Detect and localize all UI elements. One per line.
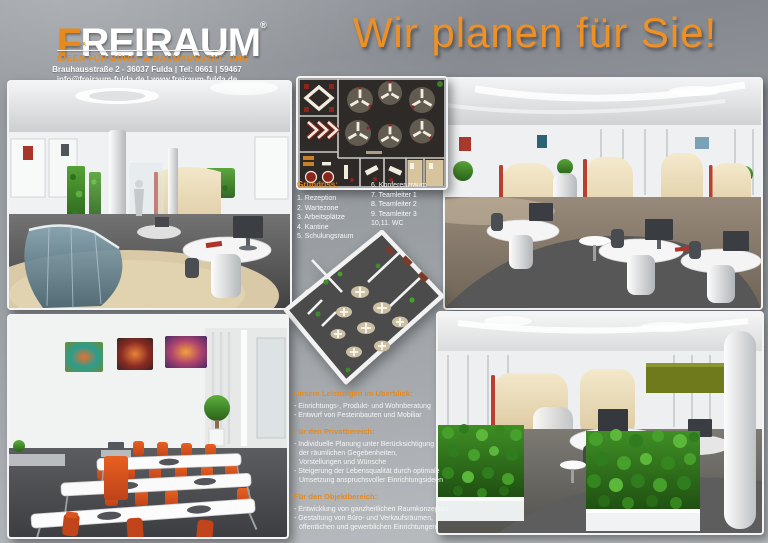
brand-tagline: IDEEN FÜR BÜRO- & RAUMAUSSTATTUNG — [57, 53, 233, 63]
small-plant — [13, 440, 25, 452]
lectern — [101, 442, 131, 500]
training-room-graphic — [9, 316, 287, 537]
legend-item: 2. Wartezone — [297, 204, 353, 214]
service-line: Umsetzung anspruchsvoller Einrichtungsid… — [294, 476, 452, 485]
legend-item: 3. Arbeitsplätze — [297, 213, 353, 223]
headline: Wir planen für Sie! — [310, 8, 760, 58]
legend-item: 8. Teamleiter 2 — [371, 200, 427, 210]
legend-item: 10,11. WC — [371, 219, 427, 229]
legend-item: 6. Konferenzraum — [371, 181, 427, 191]
service-line: - Gestaltung von Büro- und Verkaufsräume… — [294, 514, 452, 523]
freiraum-poster: FREIRAUM® FULDA IDEEN FÜR BÜRO- & RAUMAU… — [0, 0, 768, 543]
legend-item: 7. Teamleiter 1 — [371, 191, 427, 201]
logo-divider-line — [57, 50, 233, 51]
floorplan-legend: Grundriss: 1. Rezeption 2. Wartezone 3. … — [297, 180, 447, 195]
service-line: - Steigerung der Lebensqualität durch op… — [294, 467, 452, 476]
service-line: öffentlichen und gewerblichen Einrichtun… — [294, 523, 452, 532]
service-line: - Entwurf von Festeinbauten und Mobiliar — [294, 411, 452, 420]
photo-openplan-render — [443, 77, 763, 310]
service-line: der räumlichen Gegebenheiten, — [294, 449, 452, 458]
iso-structure — [286, 232, 442, 385]
legend-item: 1. Rezeption — [297, 194, 353, 204]
photo-training-room — [7, 314, 289, 539]
logo-subtext: FULDA — [61, 42, 88, 48]
legend-column-2: 6. Konferenzraum 7. Teamleiter 1 8. Team… — [371, 181, 427, 229]
registered-trademark: ® — [260, 20, 267, 30]
service-line: - Einrichtungs-, Produkt- und Wohnberatu… — [294, 402, 452, 411]
plantwall-office-graphic — [438, 313, 762, 533]
services-private-heading: Für den Privatbereich: — [294, 427, 452, 436]
floorplan-3d-isometric — [282, 230, 446, 386]
service-line: - Individuelle Planung unter Berücksicht… — [294, 440, 452, 449]
floorplan-2d-graphic — [298, 78, 446, 188]
walls — [9, 316, 287, 448]
white-column — [724, 331, 756, 529]
services-object-heading: Für den Objektbereich: — [294, 492, 452, 501]
services-block: Unsere Leistungen im Überblick: - Einric… — [294, 389, 452, 532]
services-overview-heading: Unsere Leistungen im Überblick: — [294, 389, 452, 398]
service-line: - Entwicklung von ganzheitlichen Raumkon… — [294, 505, 452, 514]
sideboard — [9, 454, 65, 466]
photo-reception-render — [7, 80, 292, 310]
service-line: Vorstellungen und Wünsche — [294, 458, 452, 467]
reception-render-graphic — [9, 82, 290, 308]
floorplan-2d — [296, 76, 448, 190]
floorplan-3d-graphic — [282, 230, 446, 386]
brand-logo: FREIRAUM® FULDA IDEEN FÜR BÜRO- & RAUMAU… — [57, 4, 235, 64]
plant-hedge-center — [586, 429, 700, 531]
photo-plantwall-office — [436, 311, 764, 535]
address-line: Brauhausstraße 2 - 36037 Fulda | Tel: 06… — [37, 65, 257, 75]
legend-item: 9. Teamleiter 3 — [371, 210, 427, 220]
openplan-render-graphic — [445, 79, 761, 308]
